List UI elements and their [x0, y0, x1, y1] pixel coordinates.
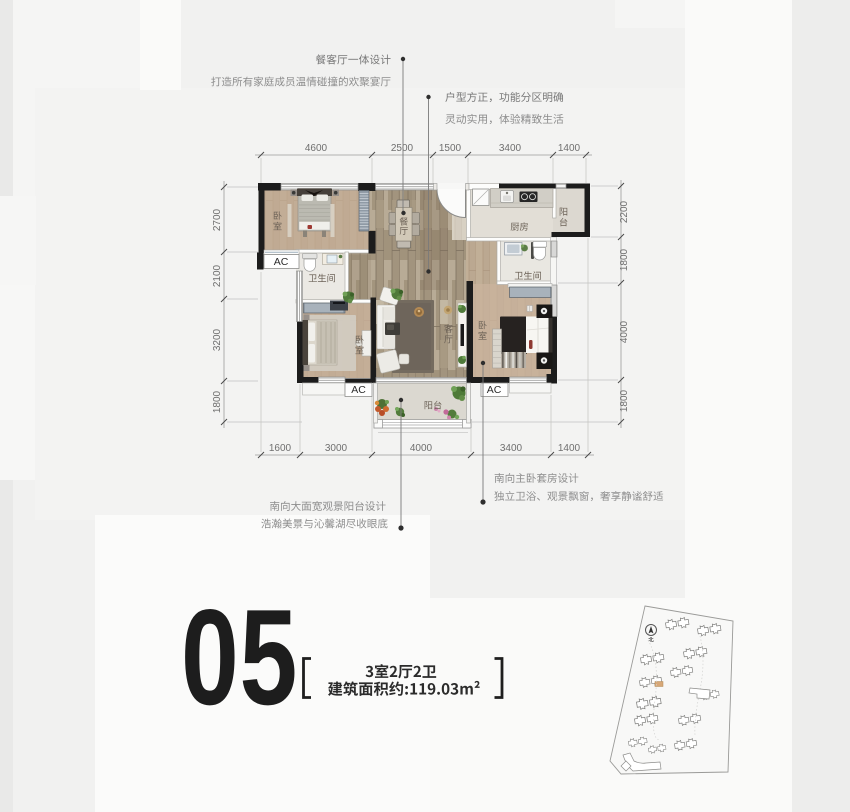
svg-text:AC: AC: [351, 384, 366, 396]
svg-text:AC: AC: [274, 256, 289, 268]
svg-text:2100: 2100: [212, 264, 223, 287]
svg-text:4000: 4000: [410, 443, 433, 454]
svg-text:3400: 3400: [500, 443, 523, 454]
svg-text:2500: 2500: [391, 143, 414, 154]
svg-text:2700: 2700: [212, 208, 223, 231]
svg-text:AC: AC: [487, 384, 502, 396]
svg-text:1800: 1800: [212, 390, 223, 413]
svg-text:3400: 3400: [499, 143, 522, 154]
svg-text:1800: 1800: [619, 389, 630, 412]
svg-text:1400: 1400: [558, 143, 581, 154]
svg-text:4600: 4600: [305, 143, 328, 154]
svg-text:1800: 1800: [619, 248, 630, 271]
svg-text:1500: 1500: [439, 143, 462, 154]
svg-text:1400: 1400: [558, 443, 581, 454]
svg-text:1600: 1600: [269, 443, 292, 454]
svg-text:4000: 4000: [619, 320, 630, 343]
svg-text:3200: 3200: [212, 328, 223, 351]
svg-text:3000: 3000: [325, 443, 348, 454]
svg-text:2200: 2200: [619, 200, 630, 223]
svg-text:05: 05: [181, 580, 298, 733]
